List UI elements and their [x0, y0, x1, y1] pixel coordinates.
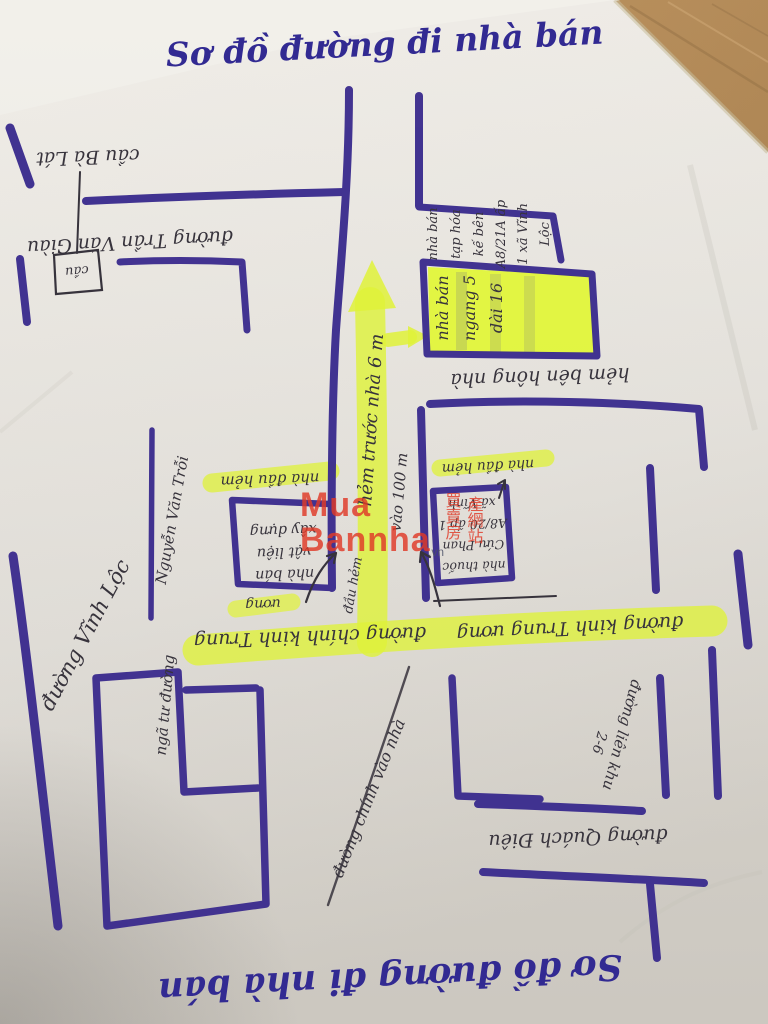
watermark-seal-col2: 產網站: [465, 496, 484, 544]
road-stroke: [421, 410, 426, 598]
house-info-line: A8/21A ấp: [493, 199, 509, 269]
watermark-seal-col1: 買賣房: [443, 492, 462, 541]
house-info-line: 1 xã Vĩnh: [516, 203, 531, 265]
photo-of-hand-drawn-map: Sơ đồ đường đi nhà bán Sơ đồ đường đi nh…: [0, 0, 768, 1024]
house-dim-line: nhà bán: [433, 275, 452, 340]
hand-drawn-map-photo: Sơ đồ đường đi nhà bán Sơ đồ đường đi nh…: [0, 0, 768, 1024]
house-info-line: nhà bán: [426, 207, 441, 260]
house-info-line: tạp hóa: [449, 209, 464, 258]
highlighted-house-block: [428, 267, 595, 354]
watermark-brand-line2: Bannha: [300, 521, 431, 559]
house-info-line: Lộc: [538, 221, 553, 246]
house-info-line: kế bên: [471, 212, 487, 256]
house-dim-line: dài 16: [487, 283, 506, 333]
watermark-domain: .vn: [428, 545, 444, 559]
watermark-brand-line1: Mua: [300, 486, 371, 524]
label-cau-ba-lat: cầu Bà Lát: [36, 144, 141, 170]
materials-line: nhà bán: [255, 565, 315, 583]
label-cau: cầu: [64, 262, 89, 280]
house-dim-line: ngang 5: [460, 275, 479, 341]
label-uong: ương: [245, 595, 281, 612]
road-nguyen-van-troi: [151, 430, 152, 618]
pharmacy-line: nhà thuốc: [442, 558, 506, 575]
